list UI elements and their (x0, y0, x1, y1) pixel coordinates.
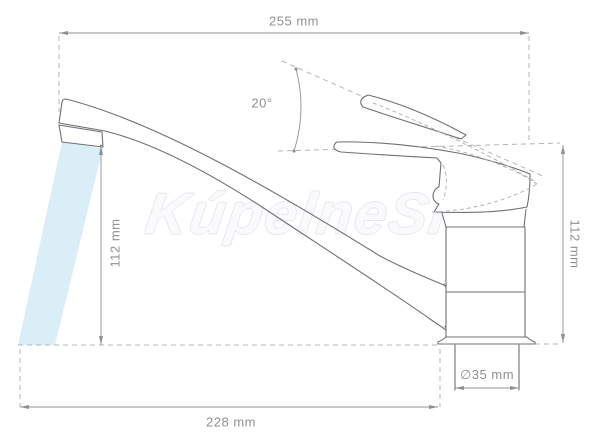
faucet-dimension-diagram: KúpelneSK (0, 0, 600, 443)
faucet-body-group (59, 95, 537, 390)
angle-arc (294, 69, 301, 151)
faucet-spout-top-edge (59, 99, 446, 286)
faucet-body-cylinder (446, 227, 525, 337)
faucet-technical-drawing (0, 0, 600, 443)
faucet-base-flare (438, 337, 535, 344)
faucet-handle-and-head (334, 142, 530, 213)
faucet-handle-raised (361, 95, 466, 139)
water-stream (18, 142, 103, 345)
